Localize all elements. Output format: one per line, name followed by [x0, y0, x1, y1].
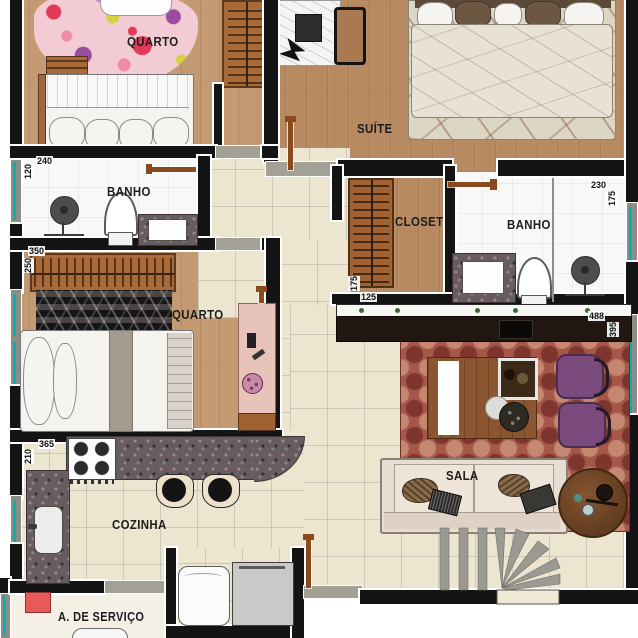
door-leaf	[448, 182, 493, 187]
room-label-suite: SUÍTE	[357, 121, 392, 136]
quarto1-bed-rail	[38, 74, 46, 152]
shower-legs	[62, 222, 64, 235]
window	[629, 207, 632, 260]
water-heater	[178, 566, 230, 626]
rack-rod	[371, 180, 373, 286]
door-hinge	[285, 116, 296, 122]
dim-quarto2-w: 350	[28, 246, 45, 256]
sink-icon	[462, 261, 504, 294]
toilet-base	[108, 232, 133, 246]
plant-icon	[513, 308, 518, 313]
dim-closet-h: 175	[348, 276, 360, 291]
kitchen-sink-icon	[34, 506, 63, 554]
window	[13, 294, 16, 336]
dim-cozinha-h: 210	[22, 449, 34, 464]
shower-icon	[571, 256, 600, 285]
wall	[166, 548, 176, 638]
bed-pillow	[153, 117, 189, 149]
door-threshold	[216, 238, 262, 250]
wardrobe-rod	[246, 2, 248, 86]
dim-sala-h: 395	[607, 322, 619, 337]
window	[13, 162, 16, 220]
wall	[198, 156, 210, 250]
quarto1-bed	[44, 74, 194, 152]
wall	[626, 0, 638, 205]
bed-foot-ruffle	[167, 333, 192, 429]
window	[3, 596, 6, 636]
room-label-banho1: BANHO	[107, 184, 151, 199]
door-leaf	[150, 167, 196, 172]
room-label-sala: SALA	[446, 468, 479, 483]
wall	[338, 160, 452, 176]
cup	[574, 494, 582, 502]
window	[13, 500, 16, 542]
bar-cooktop	[499, 320, 533, 339]
dim-banho1-w: 240	[36, 156, 53, 166]
dining-chair	[558, 402, 606, 448]
door-threshold	[266, 162, 338, 176]
bed-duvet	[411, 24, 613, 118]
door-threshold	[216, 146, 262, 158]
room-label-banho2: BANHO	[507, 217, 551, 232]
wall	[10, 224, 22, 292]
laundry-tank	[25, 592, 51, 613]
quarto1-desk	[100, 0, 172, 16]
desk-stool	[242, 373, 263, 394]
dim-quarto2-h: 250	[22, 258, 34, 273]
desk-chair	[334, 7, 366, 65]
cooktop-icon	[68, 438, 116, 480]
door-hinge	[490, 179, 497, 190]
door-threshold	[105, 581, 168, 593]
wall	[498, 160, 628, 176]
table-plant	[596, 484, 613, 501]
quarto2-wardrobe	[30, 253, 176, 292]
window-band	[11, 158, 21, 224]
dim-closet-w: 125	[360, 292, 377, 302]
cooktop-knobs	[70, 480, 114, 484]
wall	[332, 166, 342, 220]
room-label-cozinha: COZINHA	[112, 517, 167, 532]
door-hinge	[146, 164, 152, 174]
shower-icon	[50, 196, 79, 225]
dim-banho2-w: 230	[590, 180, 607, 190]
window-band	[1, 594, 10, 638]
entry-threshold	[304, 586, 362, 598]
sink-icon	[148, 219, 187, 241]
room-label-quarto2: QUARTO	[172, 307, 223, 322]
dim-sala-w: 488	[588, 311, 605, 321]
cup	[582, 504, 594, 516]
dim-banho2-h: 175	[606, 191, 618, 206]
quarto2-desk-shelf	[238, 413, 276, 431]
room-label-quarto1: QUARTO	[127, 34, 178, 49]
wall	[10, 0, 22, 158]
table-runner	[438, 361, 459, 435]
faucet	[28, 524, 37, 529]
laptop	[295, 14, 322, 42]
shower-legs	[584, 282, 586, 295]
washing-machine	[72, 628, 128, 638]
bed-pillow	[49, 117, 85, 149]
wall	[264, 0, 278, 162]
suite-bed	[415, 0, 611, 116]
door-hinge	[303, 534, 314, 540]
quarto2-bed	[20, 330, 194, 432]
plant-icon	[395, 308, 400, 313]
room-label-closet: CLOSET	[395, 214, 444, 229]
freezer	[232, 562, 294, 626]
closet-rack	[348, 178, 394, 288]
dim-banho1-h: 120	[22, 164, 34, 179]
door-leaf	[288, 120, 293, 170]
bar-stool	[156, 474, 194, 508]
room-label-servico: A. DE SERVIÇO	[58, 610, 144, 624]
bed-blanket	[47, 75, 189, 108]
window-band	[627, 203, 637, 264]
window	[13, 342, 16, 384]
plant-icon	[359, 308, 364, 313]
quarto1-wardrobe	[222, 0, 270, 88]
door-hinge	[256, 286, 267, 292]
wall	[166, 626, 304, 638]
bed-pillow	[53, 343, 77, 419]
dim-cozinha-w: 365	[38, 439, 55, 449]
plant-icon	[475, 308, 480, 313]
quarto2-desk	[238, 303, 276, 415]
serving-tray	[498, 358, 538, 400]
centerpiece-bowl	[499, 402, 529, 432]
wall	[214, 84, 222, 150]
window-band	[11, 496, 21, 546]
shower-legs	[44, 234, 84, 236]
dining-chair	[556, 354, 604, 399]
bed-pillow	[23, 337, 55, 425]
staircase	[438, 526, 630, 606]
entry-door-leaf	[306, 538, 311, 588]
wall	[262, 146, 278, 158]
laptop	[247, 333, 256, 348]
wardrobe-rod	[32, 273, 174, 275]
bar-stool	[202, 474, 240, 508]
bed-blanket-stripe	[109, 331, 133, 431]
floor-plan: QUARTO SUÍTE BANHO CLOSET BANHO QUARTO S…	[0, 0, 638, 638]
wall	[0, 578, 10, 594]
shower-glass	[552, 178, 554, 302]
